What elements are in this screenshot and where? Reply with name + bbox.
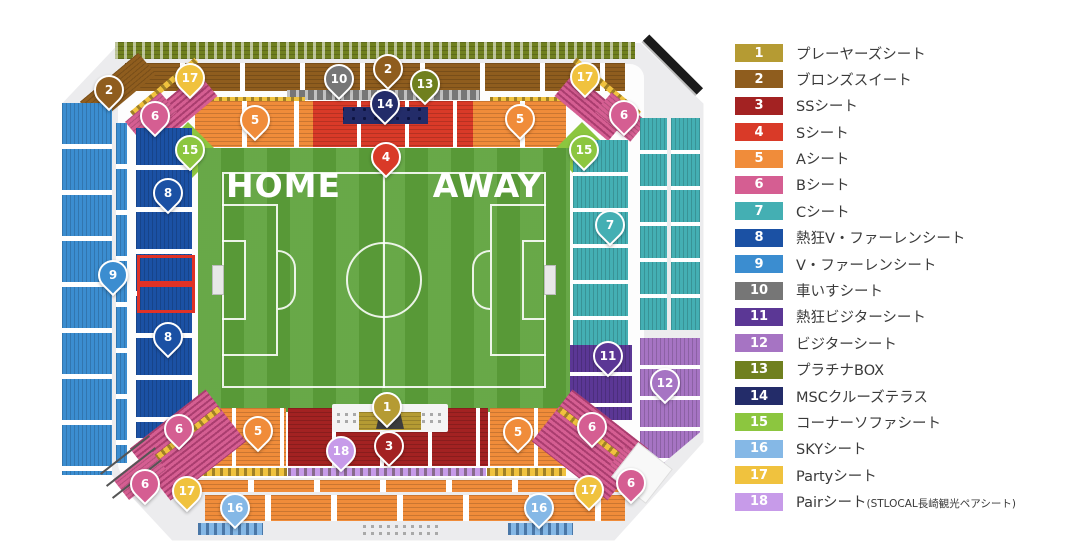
marker-number: 6: [132, 471, 158, 497]
marker-number: 16: [222, 495, 248, 521]
legend-item-9: 9V・ファーレンシート: [735, 255, 1065, 273]
marker-number: 5: [505, 419, 531, 445]
marker-number: 15: [571, 137, 597, 163]
legend-swatch: 17: [735, 466, 783, 484]
legend-swatch: 6: [735, 176, 783, 194]
legend-item-11: 11熱狂ビジターシート: [735, 308, 1065, 326]
legend-swatch: 15: [735, 413, 783, 431]
concourse-seat-dashes: [363, 525, 443, 536]
home-end-label: HOME: [226, 166, 341, 205]
marker-number: 6: [142, 103, 168, 129]
marker-number: 2: [375, 56, 401, 82]
legend-item-3: 3SSシート: [735, 97, 1065, 115]
legend-label: Bシート: [796, 174, 849, 195]
legend-label: Partyシート: [796, 465, 877, 486]
stadium-map: HOME AWAY 122345555: [60, 38, 720, 543]
marker-number: 13: [412, 71, 438, 97]
legend-item-4: 4Sシート: [735, 123, 1065, 141]
marker-number: 5: [507, 106, 533, 132]
legend-label: 熱狂ビジターシート: [796, 306, 926, 327]
marker-number: 6: [166, 416, 192, 442]
section-c-seat-inner-right[interactable]: [573, 140, 628, 345]
legend-swatch: 11: [735, 308, 783, 326]
legend-label: MSCクルーズテラス: [796, 386, 928, 407]
marker-number: 17: [174, 478, 200, 504]
goal-left: [212, 265, 224, 295]
legend-label: Aシート: [796, 148, 849, 169]
marker-number: 6: [611, 102, 637, 128]
pitch-penalty-arc-left: [278, 250, 296, 310]
section-party-bottom-right[interactable]: [487, 468, 566, 476]
legend-swatch: 8: [735, 229, 783, 247]
legend-item-10: 10車いすシート: [735, 282, 1065, 300]
legend-item-1: 1プレーヤーズシート: [735, 44, 1065, 62]
legend-item-12: 12ビジターシート: [735, 334, 1065, 352]
legend-item-15: 15コーナーソファシート: [735, 413, 1065, 431]
seat-map-page: HOME AWAY 122345555: [0, 0, 1080, 553]
section-c-seat-outer-right-2[interactable]: [671, 118, 700, 330]
legend-item-16: 16SKYシート: [735, 440, 1065, 458]
marker-number: 17: [576, 477, 602, 503]
legend-label-suffix: (STLOCAL長崎観光ペアシート): [866, 498, 1015, 510]
bench-dashes-left: [337, 413, 359, 425]
legend-label: コーナーソファシート: [796, 412, 941, 433]
legend-label: プレーヤーズシート: [796, 43, 926, 64]
pitch-goal-area-right: [522, 240, 546, 320]
marker-number: 8: [155, 324, 181, 350]
pitch-penalty-arc-right: [472, 250, 490, 310]
legend-label: ブロンズスイート: [796, 69, 912, 90]
marker-number: 1: [374, 394, 400, 420]
marker-number: 12: [652, 370, 678, 396]
marker-number: 10: [326, 66, 352, 92]
pitch: HOME AWAY: [198, 148, 570, 412]
marker-number: 8: [155, 180, 181, 206]
legend-swatch: 12: [735, 334, 783, 352]
legend-label: 車いすシート: [796, 280, 883, 301]
legend-item-14: 14MSCクルーズテラス: [735, 387, 1065, 405]
section-c-seat-outer-right-1[interactable]: [640, 118, 667, 330]
section-nekkyo-highlight-2[interactable]: [137, 284, 195, 313]
marker-number: 7: [597, 212, 623, 238]
legend-item-8: 8熱狂V・ファーレンシート: [735, 229, 1065, 247]
marker-number: 5: [242, 107, 268, 133]
marker-number: 18: [328, 438, 354, 464]
away-end-label: AWAY: [433, 166, 542, 205]
marker-number: 11: [595, 343, 621, 369]
legend-swatch: 2: [735, 70, 783, 88]
legend-item-13: 13プラチナBOX: [735, 361, 1065, 379]
marker-number: 14: [372, 91, 398, 117]
legend-label: Sシート: [796, 122, 849, 143]
legend-item-18: 18Pairシート(STLOCAL長崎観光ペアシート): [735, 493, 1065, 511]
section-nekkyo-highlight-1[interactable]: [137, 255, 195, 284]
legend-label: Pairシート(STLOCAL長崎観光ペアシート): [796, 491, 1016, 512]
legend-item-6: 6Bシート: [735, 176, 1065, 194]
legend-item-2: 2ブロンズスイート: [735, 70, 1065, 88]
legend-label: 熱狂V・ファーレンシート: [796, 227, 965, 248]
marker-number: 17: [177, 65, 203, 91]
marker-number: 4: [373, 144, 399, 170]
pitch-goal-area-left: [222, 240, 246, 320]
legend-label: ビジターシート: [796, 333, 897, 354]
section-v-varen-outer-left-narrow[interactable]: [116, 123, 127, 463]
legend-label: SSシート: [796, 95, 858, 116]
marker-number: 15: [177, 137, 203, 163]
legend-swatch: 5: [735, 150, 783, 168]
legend-swatch: 3: [735, 97, 783, 115]
legend-swatch: 10: [735, 282, 783, 300]
legend-label: SKYシート: [796, 438, 867, 459]
goal-right: [544, 265, 556, 295]
legend-item-7: 7Cシート: [735, 202, 1065, 220]
legend-swatch: 18: [735, 493, 783, 511]
marker-number: 16: [526, 495, 552, 521]
legend: 1プレーヤーズシート2ブロンズスイート3SSシート4Sシート5Aシート6Bシート…: [735, 44, 1065, 519]
legend-swatch: 16: [735, 440, 783, 458]
legend-swatch: 13: [735, 361, 783, 379]
marker-number: 6: [579, 414, 605, 440]
legend-label: Cシート: [796, 201, 850, 222]
marker-number: 3: [376, 433, 402, 459]
legend-swatch: 4: [735, 123, 783, 141]
legend-swatch: 9: [735, 255, 783, 273]
section-a-seat-lower-row2[interactable]: [205, 495, 625, 521]
marker-number: 5: [245, 418, 271, 444]
legend-swatch: 7: [735, 202, 783, 220]
legend-item-5: 5Aシート: [735, 150, 1065, 168]
legend-label: V・ファーレンシート: [796, 254, 936, 275]
legend-item-17: 17Partyシート: [735, 466, 1065, 484]
marker-number: 17: [572, 64, 598, 90]
pitch-center-circle: [346, 242, 422, 318]
bench-dashes-right: [422, 413, 444, 425]
marker-number: 6: [618, 470, 644, 496]
legend-swatch: 14: [735, 387, 783, 405]
section-pair-seat[interactable]: [288, 468, 486, 476]
marker-number: 2: [96, 77, 122, 103]
legend-swatch: 1: [735, 44, 783, 62]
section-v-varen-outer-left[interactable]: [62, 103, 112, 475]
legend-label: プラチナBOX: [796, 359, 884, 380]
marker-number: 9: [100, 262, 126, 288]
